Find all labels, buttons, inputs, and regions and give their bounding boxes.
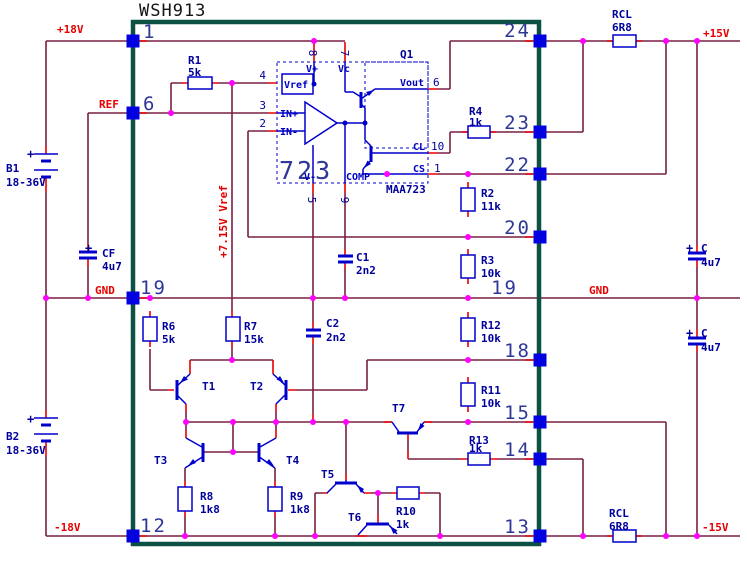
ic-label-vm: V-	[304, 172, 316, 183]
rcl-top-name: RCL	[612, 8, 632, 21]
pin-23: 23	[504, 112, 531, 134]
t6-name: T6	[348, 511, 362, 524]
junction-dot	[580, 533, 586, 539]
resistor-r11	[461, 383, 475, 406]
pin-19-left: 19	[140, 277, 167, 299]
cf-value: 4u7	[102, 260, 122, 273]
resistors	[143, 35, 636, 542]
junction-dot	[182, 533, 188, 539]
junction-dot	[312, 533, 318, 539]
b2-value: 18-36V	[6, 444, 46, 457]
r9-value: 1k8	[290, 503, 310, 516]
r7-name: R7	[244, 320, 257, 333]
q1-name: Q1	[400, 48, 414, 61]
pin-14: 14	[504, 439, 531, 461]
rail-ref: REF	[99, 98, 119, 111]
t3-name: T3	[154, 454, 167, 467]
rail-p15v: +15V	[703, 27, 730, 40]
rail-m18v: -18V	[54, 521, 81, 534]
rail-gnd-right: GND	[589, 284, 609, 297]
r12-name: R12	[481, 319, 501, 332]
r11-name: R11	[481, 384, 501, 397]
junction-dot	[342, 295, 348, 301]
r9-name: R9	[290, 490, 303, 503]
t1-name: T1	[202, 380, 216, 393]
junction-dot	[343, 419, 349, 425]
junction-dot-blue	[363, 121, 368, 126]
junction-dot	[85, 295, 91, 301]
ic-label-comp: COMP	[346, 172, 370, 183]
r10-value: 1k	[396, 518, 410, 531]
r8-value: 1k8	[200, 503, 220, 516]
r10-name: R10	[396, 505, 416, 518]
c2-value: 2n2	[326, 331, 346, 344]
t2-name: T2	[250, 380, 263, 393]
r6-value: 5k	[162, 333, 176, 346]
icpin-10: 10	[431, 140, 444, 153]
c2-name: C2	[326, 317, 339, 330]
junction-dot	[663, 38, 669, 44]
junction-dot	[663, 533, 669, 539]
r1-value: 5k	[188, 66, 202, 79]
pin-15: 15	[504, 402, 531, 424]
resistor-r2	[461, 188, 475, 211]
battery-b1	[34, 154, 58, 177]
pin-square	[534, 126, 547, 139]
pin-square	[534, 416, 547, 429]
r12-value: 10k	[481, 332, 501, 345]
pin-square	[127, 292, 140, 305]
junction-dot	[384, 171, 390, 177]
resistor-r7	[226, 317, 240, 341]
junction-dot	[694, 38, 700, 44]
resistor-r9	[268, 487, 282, 511]
pin-13: 13	[504, 516, 531, 538]
junction-dot	[694, 533, 700, 539]
circuit-schematic: WSH913+18VREFGNDGND+15V-15V-18V+7.15V Vr…	[0, 0, 747, 567]
cf-name: CF	[102, 247, 115, 260]
ic-label-cs: CS	[413, 164, 425, 175]
junction-dot	[465, 234, 471, 240]
junction-dot	[229, 357, 235, 363]
pin-square	[534, 530, 547, 543]
junction-dot	[694, 295, 700, 301]
icpin-8: 8	[306, 50, 319, 57]
r8-name: R8	[200, 490, 213, 503]
rail-gnd-left: GND	[95, 284, 115, 297]
c-top-value: 4u7	[701, 256, 721, 269]
r2-value: 11k	[481, 200, 501, 213]
pin-20: 20	[504, 217, 531, 239]
icpin-1: 1	[434, 162, 441, 175]
pin-22: 22	[504, 154, 531, 176]
resistor-rcl-top	[613, 35, 636, 47]
pin-square	[127, 35, 140, 48]
junction-dot	[465, 295, 471, 301]
icpin-6: 6	[433, 76, 440, 89]
icpin-5: 5	[305, 197, 318, 204]
pin-19-right: 19	[491, 277, 518, 299]
r13-value: 1k	[469, 442, 483, 455]
resistor-r3	[461, 255, 475, 278]
schematic-page: WSH913+18VREFGNDGND+15V-15V-18V+7.15V Vr…	[0, 0, 747, 567]
junction-dot	[168, 110, 174, 116]
icpin-2: 2	[259, 117, 266, 130]
rail-m15v: -15V	[702, 521, 729, 534]
pin-square	[534, 453, 547, 466]
b2-polarity: +	[27, 412, 34, 426]
icpin-9: 9	[338, 197, 351, 204]
junction-dot-blue	[312, 82, 317, 87]
pin-square	[127, 107, 140, 120]
c1-value: 2n2	[356, 264, 376, 277]
rail-vref715: +7.15V Vref	[217, 185, 230, 258]
c-top-name: C	[701, 242, 708, 255]
ic-label-inp: IN+	[280, 109, 298, 120]
r7-value: 15k	[244, 333, 264, 346]
chip-title: WSH913	[139, 1, 206, 21]
r11-value: 10k	[481, 397, 501, 410]
pin-squares	[127, 35, 547, 543]
t7-name: T7	[392, 402, 405, 415]
junction-dot	[310, 419, 316, 425]
junction-dot	[273, 419, 279, 425]
pin-18: 18	[504, 340, 531, 362]
ic-label-inm: IN-	[280, 127, 298, 138]
junction-dot-blue	[343, 121, 348, 126]
pin-square	[534, 231, 547, 244]
c-bot-value: 4u7	[701, 341, 721, 354]
b1-value: 18-36V	[6, 176, 46, 189]
pin-6: 6	[143, 93, 156, 115]
junction-dot	[230, 449, 236, 455]
pin-square	[534, 354, 547, 367]
b2-name: B2	[6, 430, 19, 443]
icpin-7: 7	[338, 50, 351, 57]
junction-dot	[375, 490, 381, 496]
ic-label-vout: Vout	[400, 78, 424, 89]
ic-label-vp: V+	[306, 64, 318, 75]
ic-part-number: MAA723	[386, 183, 426, 196]
resistor-r12	[461, 318, 475, 341]
rcl-bot-value: 6R8	[609, 520, 629, 533]
junction-dot	[465, 419, 471, 425]
junction-dot	[465, 357, 471, 363]
ic-label-vref: Vref	[284, 80, 308, 91]
r3-name: R3	[481, 254, 494, 267]
ic-label-vc: Vc	[338, 64, 350, 75]
junction-dot	[272, 533, 278, 539]
opamp-triangle	[305, 102, 337, 144]
r2-name: R2	[481, 187, 494, 200]
pin-square	[534, 168, 547, 181]
t5-name: T5	[321, 468, 334, 481]
rail-p18v: +18V	[57, 23, 84, 36]
junction-dot	[311, 38, 317, 44]
resistor-r6	[143, 317, 157, 341]
junction-dot	[229, 80, 235, 86]
battery-b2	[34, 418, 58, 441]
pin-square	[127, 530, 140, 543]
rcl-top-value: 6R8	[612, 21, 632, 34]
c-bot-name: C	[701, 327, 708, 340]
ic-label-cl: CL	[413, 142, 425, 153]
icpin-4: 4	[259, 69, 266, 82]
pin-24: 24	[504, 20, 531, 42]
cf-polarity: +	[85, 241, 92, 255]
c1-name: C1	[356, 251, 370, 264]
labels: WSH913+18VREFGNDGND+15V-15V-18V+7.15V Vr…	[6, 1, 730, 538]
junction-dot	[465, 171, 471, 177]
junction-dot	[437, 533, 443, 539]
c-top-polarity: +	[686, 241, 693, 255]
junction-dot	[183, 419, 189, 425]
junction-dot	[230, 419, 236, 425]
b1-polarity: +	[27, 147, 34, 161]
rcl-bot-name: RCL	[609, 507, 629, 520]
junction-dot	[580, 38, 586, 44]
c-bot-polarity: +	[686, 326, 693, 340]
b1-name: B1	[6, 162, 20, 175]
pin-1: 1	[143, 21, 156, 43]
r4-value: 1k	[469, 116, 483, 129]
resistor-r8	[178, 487, 192, 511]
r6-name: R6	[162, 320, 176, 333]
pin-12: 12	[140, 515, 167, 537]
junction-dot	[43, 295, 49, 301]
icpin-3: 3	[259, 99, 266, 112]
pin-square	[534, 35, 547, 48]
resistor-r10	[397, 487, 419, 499]
junction-dot	[310, 295, 316, 301]
q1-outline	[365, 62, 428, 148]
t4-name: T4	[286, 454, 300, 467]
